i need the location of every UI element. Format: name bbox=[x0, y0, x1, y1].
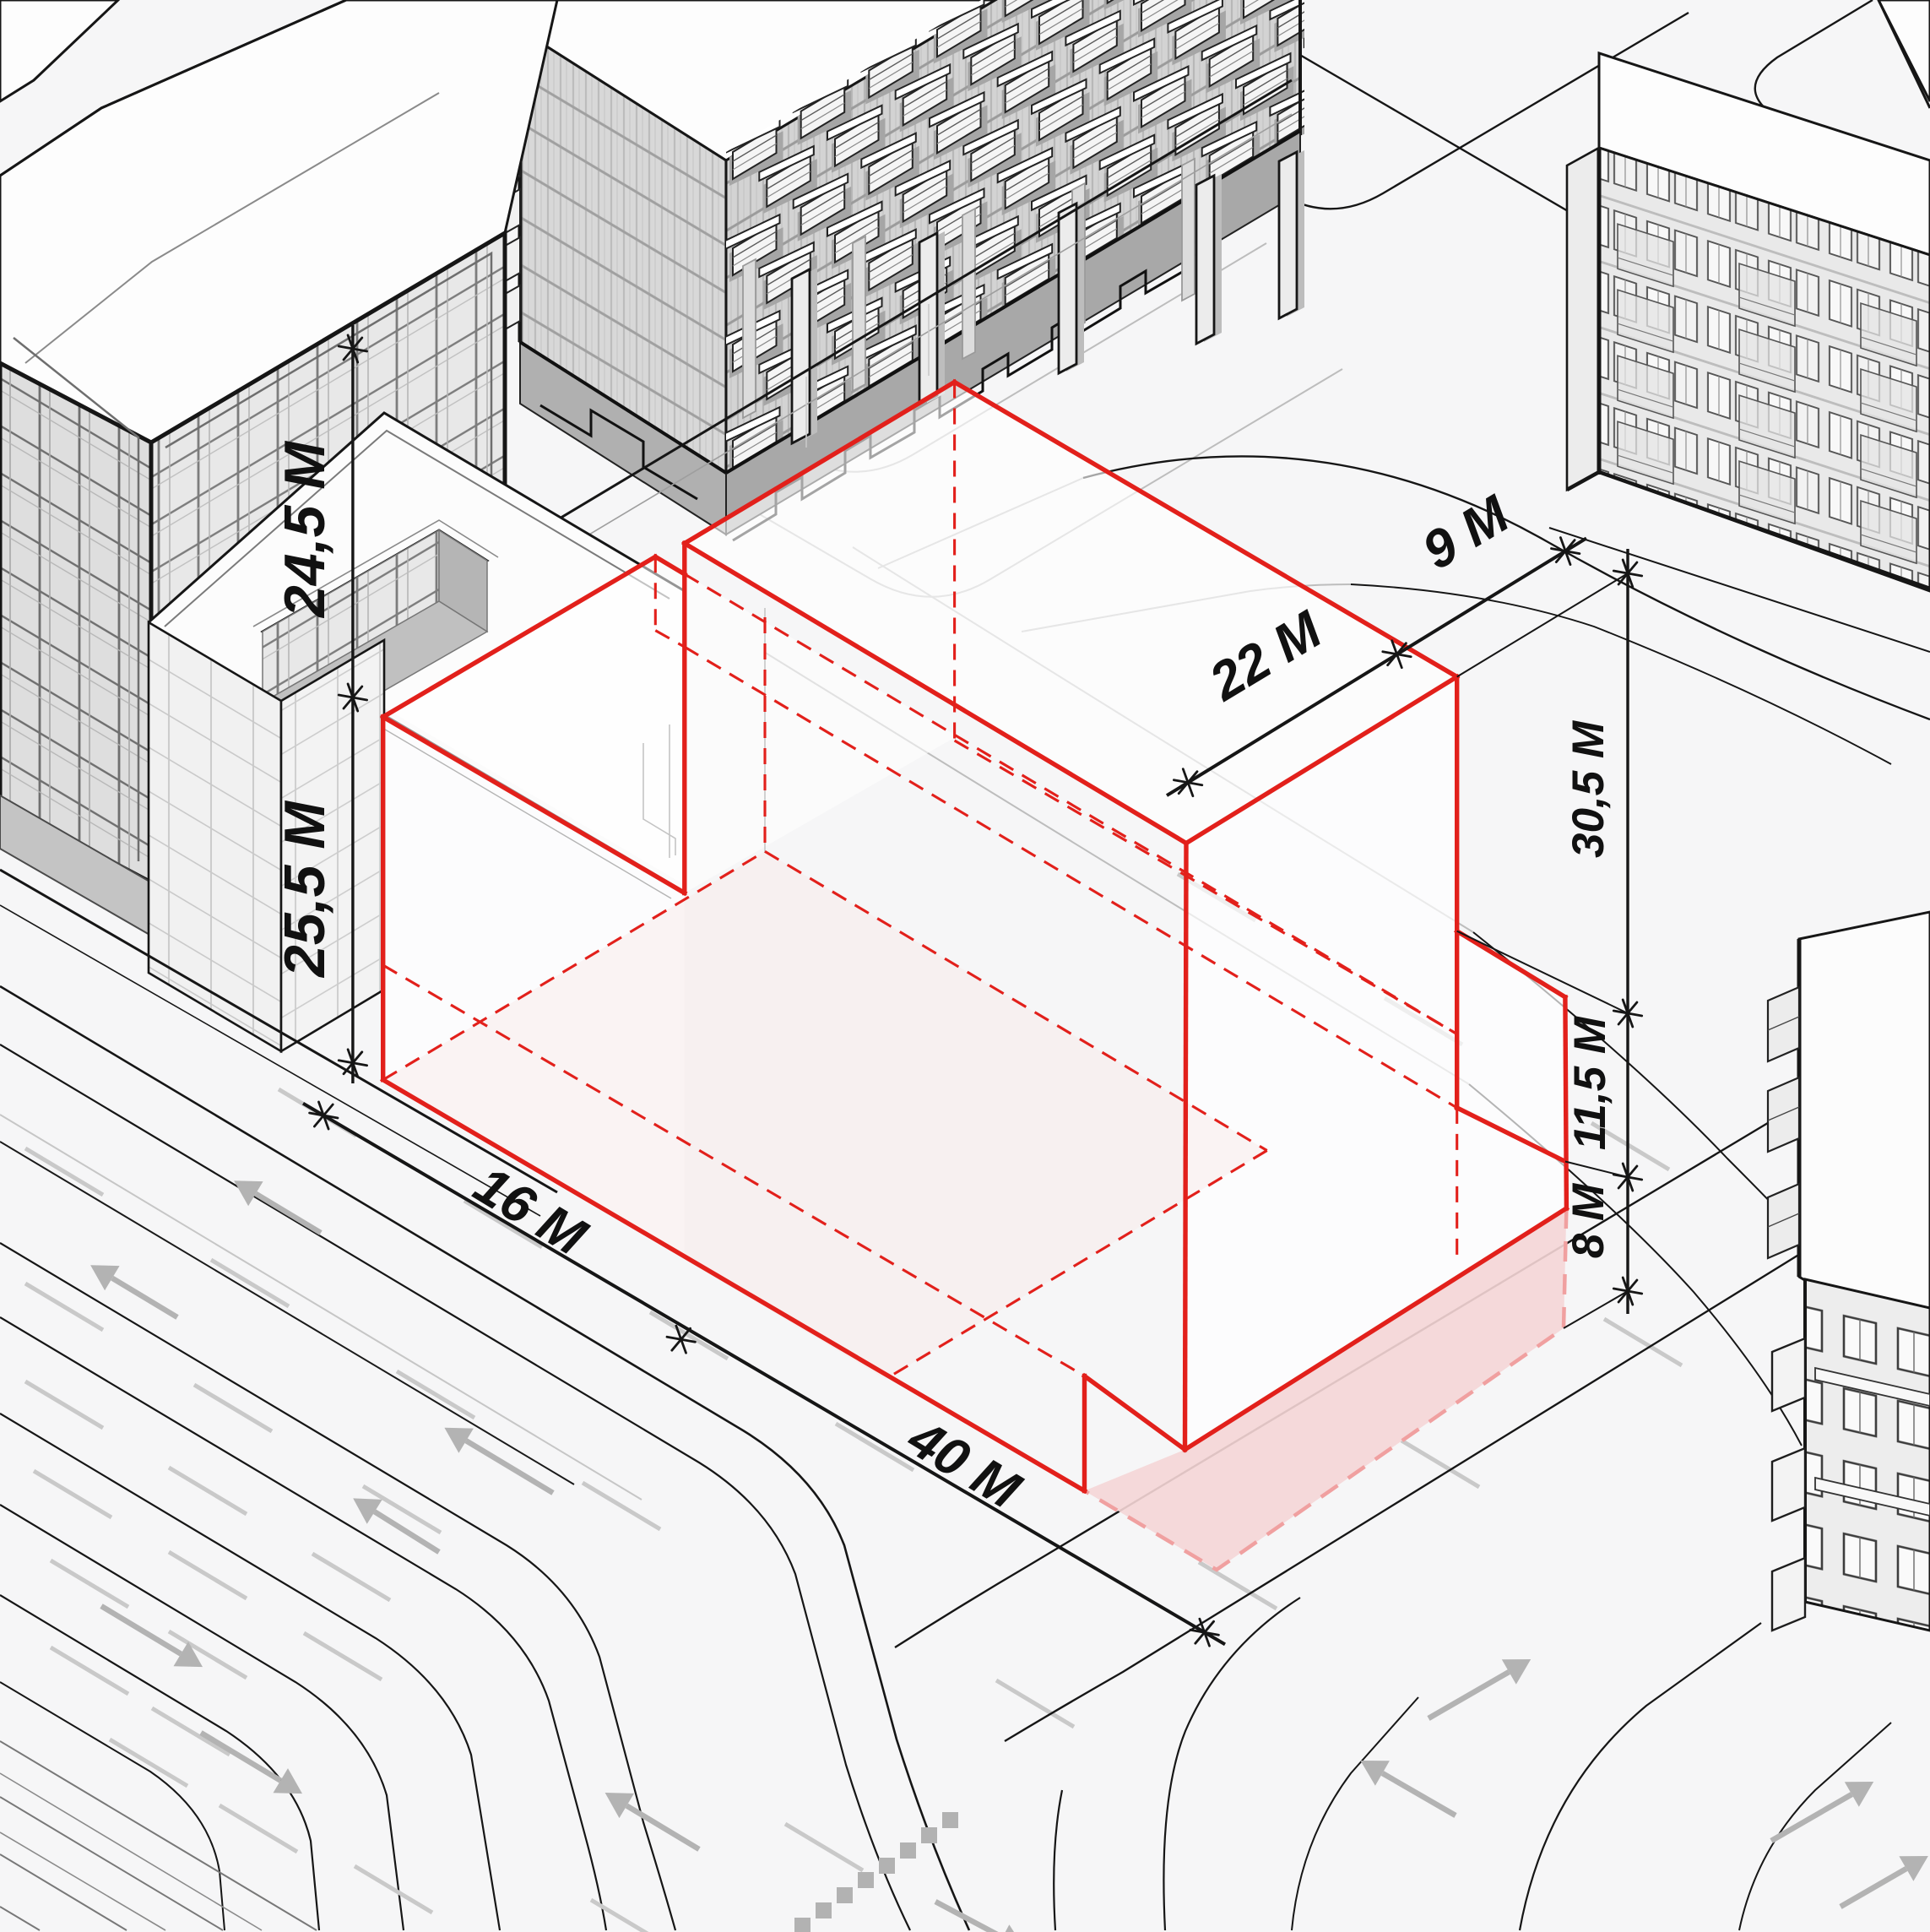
svg-text:8 M: 8 M bbox=[1564, 1182, 1613, 1258]
svg-text:11,5 M: 11,5 M bbox=[1565, 1015, 1615, 1150]
svg-text:25,5 M: 25,5 M bbox=[273, 800, 337, 979]
svg-text:24,5 M: 24,5 M bbox=[273, 441, 337, 619]
svg-text:30,5 M: 30,5 M bbox=[1564, 719, 1613, 858]
